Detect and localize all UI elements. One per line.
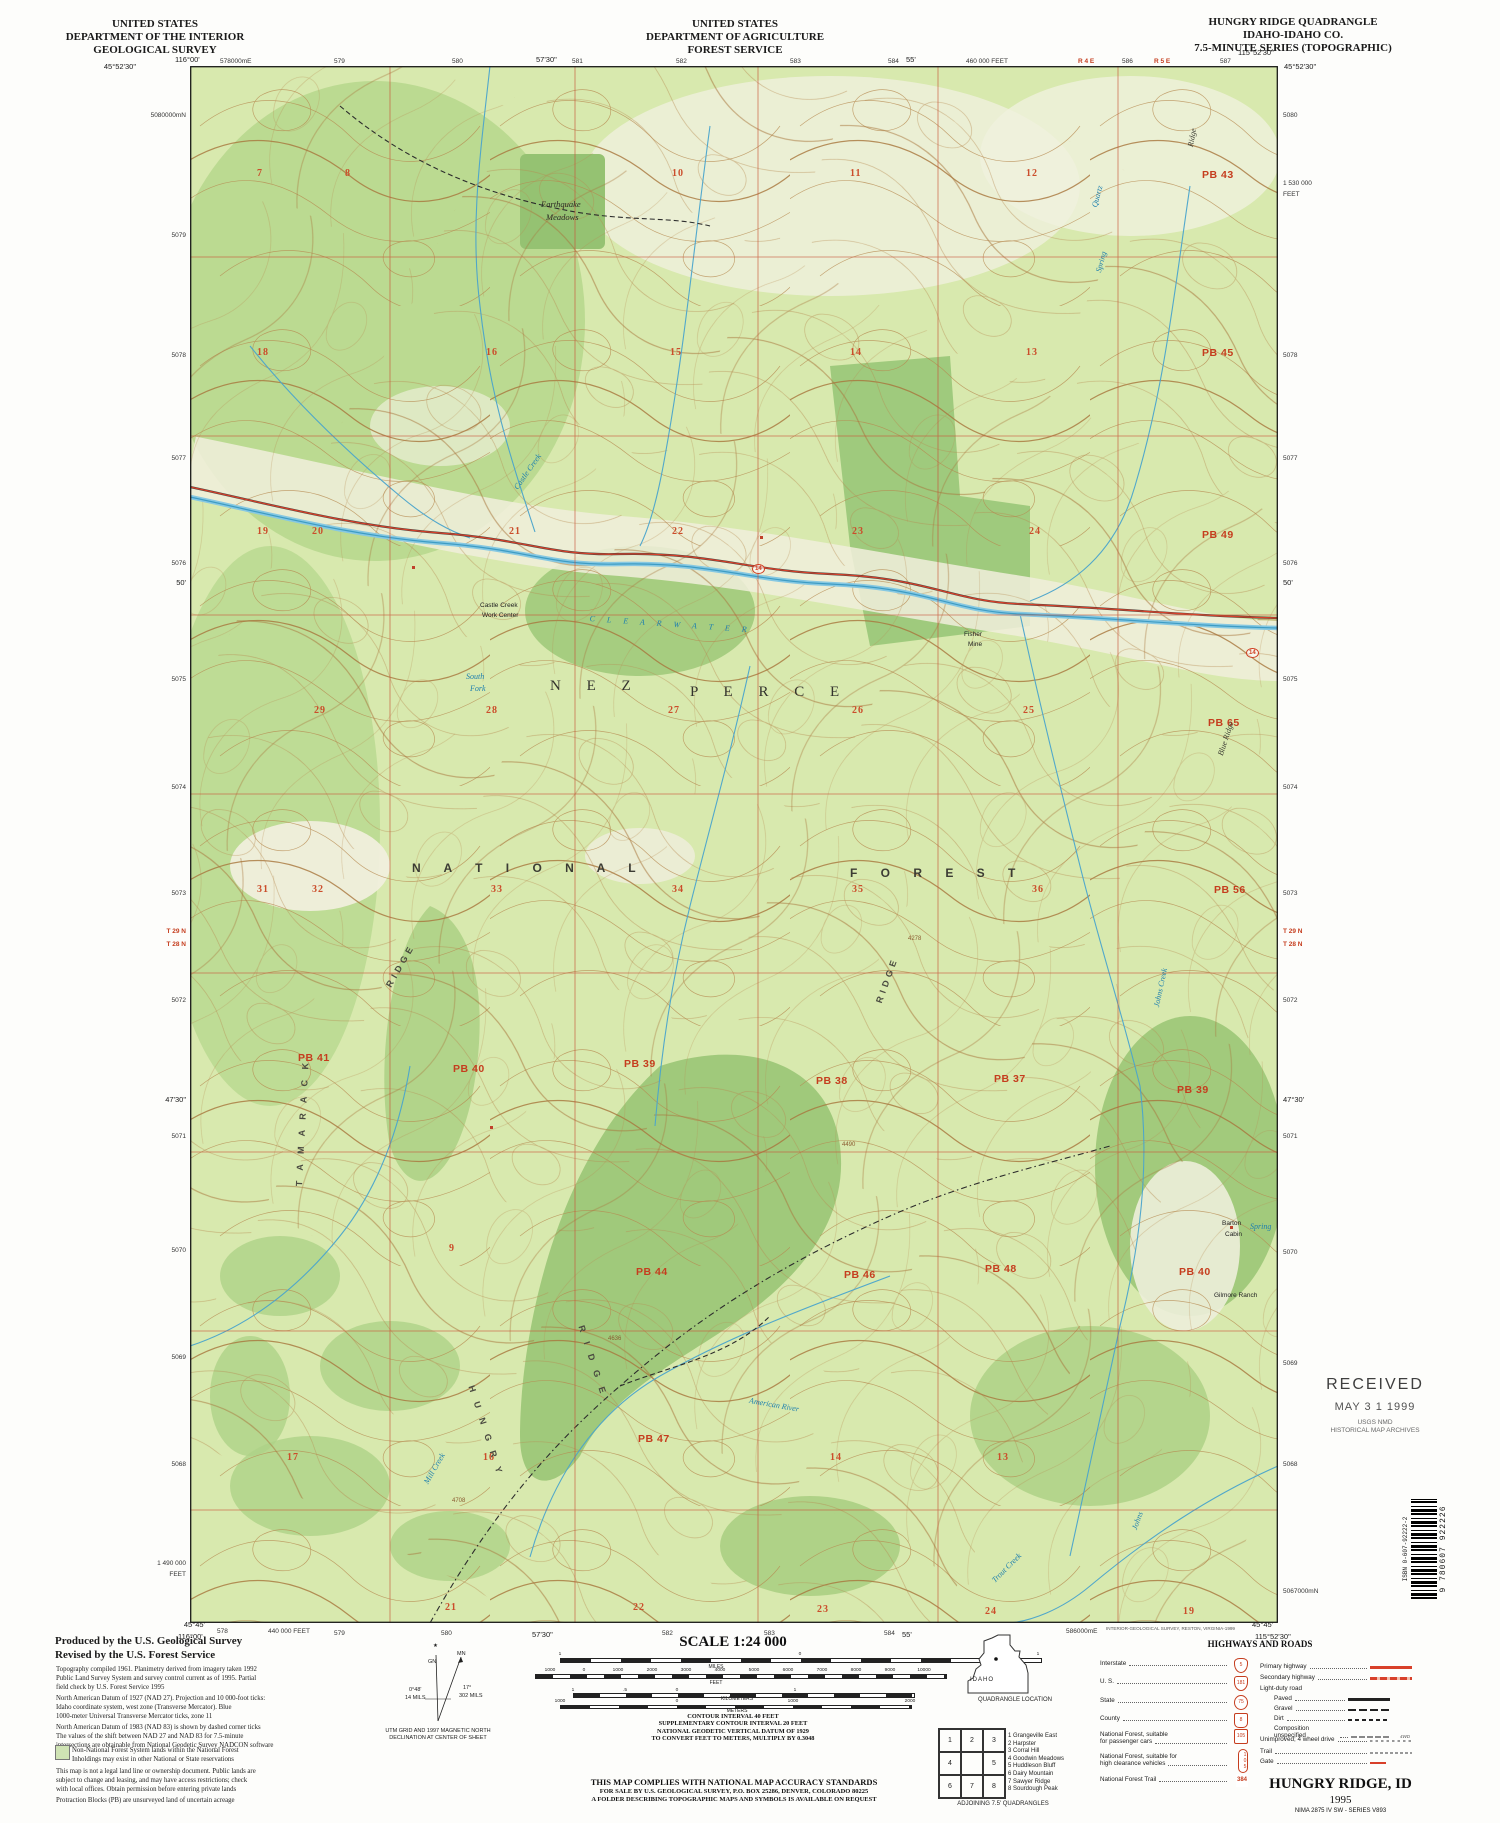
header-line: HUNGRY RIDGE QUADRANGLE: [1128, 16, 1458, 29]
leader-dots: [1275, 1753, 1367, 1754]
sheet-footer: HUNGRY RIDGE, ID 1995 NIMA 2875 IV SW - …: [1238, 1776, 1443, 1814]
margin-label: R 4 E: [1078, 58, 1094, 65]
margin-label: 580: [441, 1630, 452, 1637]
leader-dots: [1159, 1781, 1227, 1782]
legend-item: National Forest Trail 384: [1100, 1776, 1230, 1783]
isbn-barcode: ISBN 0-607-92222-2 9 780607 922226: [1402, 1490, 1458, 1608]
compliance-line: THIS MAP COMPLIES WITH NATIONAL MAP ACCU…: [484, 1778, 984, 1788]
road-style-sample: [1370, 1666, 1412, 1669]
miles-unit: MILES: [708, 1664, 723, 1670]
agency-block-usda: UNITED STATESDEPARTMENT OF AGRICULTUREFO…: [605, 18, 865, 57]
quadrangle-location-caption: QUADRANGLE LOCATION: [940, 1697, 1090, 1703]
legend-label: Primary highway: [1260, 1663, 1307, 1670]
legend-label: Secondary highway: [1260, 1674, 1315, 1681]
map-label: 4278: [908, 936, 921, 942]
scale-tick: 6000: [783, 1668, 794, 1673]
margin-label: 579: [334, 1630, 345, 1637]
survey-credit: INTERIOR-GEOLOGICAL SURVEY, RESTON, VIRG…: [1050, 1626, 1235, 1631]
note-line: 1000-meter Universal Transverse Mercator…: [56, 1713, 212, 1722]
section-number: 31: [257, 884, 269, 895]
leader-dots: [1155, 1743, 1227, 1744]
scale-tick: 1000: [545, 1668, 556, 1673]
road-style-sample: [1370, 1677, 1412, 1680]
map-label: 4490: [842, 1142, 855, 1148]
barcode-rotated-group: ISBN 0-607-92222-2 9 780607 922226: [1402, 1490, 1458, 1608]
road-style-sample: [1348, 1719, 1390, 1721]
margin-label: 583: [790, 58, 801, 65]
section-number: 12: [1026, 168, 1038, 179]
scale-tick: 2000: [905, 1699, 916, 1704]
note-line: Inholdings may exist in other National o…: [72, 1756, 234, 1765]
section-number: 25: [1023, 705, 1035, 716]
quadrangle-location: IDAHO QUADRANGLE LOCATION: [940, 1633, 1090, 1700]
declination-caption: UTM GRID AND 1997 MAGNETIC NORTH DECLINA…: [348, 1728, 528, 1742]
sheet-name: HUNGRY RIDGE, ID: [1238, 1776, 1443, 1793]
road-style-sample: [1348, 1709, 1390, 1711]
gn-mils: 14 MILS: [405, 1695, 425, 1701]
legend-label: Gate: [1260, 1758, 1274, 1765]
protraction-block-label: PB 49: [1202, 529, 1234, 541]
protraction-block-label: PB 47: [638, 1433, 670, 1445]
margin-label: 5074: [1283, 784, 1297, 791]
true-north-star: ★: [433, 1643, 438, 1649]
header-line: 7.5-MINUTE SERIES (TOPOGRAPHIC): [1128, 42, 1458, 55]
margin-label: 586: [1122, 58, 1133, 65]
scale-tick: 0: [799, 1652, 802, 1657]
grid-north-label: GN: [428, 1659, 436, 1665]
margin-label: 5078: [1283, 352, 1297, 359]
header-line: IDAHO-IDAHO CO.: [1128, 29, 1458, 42]
road-style-sample: [1370, 1752, 1412, 1754]
scale-tick: 5000: [749, 1668, 760, 1673]
route-shield-icon: 181: [1234, 1676, 1248, 1691]
inholdings-swatch: [55, 1745, 70, 1760]
section-number: 20: [312, 526, 324, 537]
header-line: UNITED STATES: [30, 18, 280, 31]
section-number: 22: [672, 526, 684, 537]
section-number: 7: [257, 168, 263, 179]
km-unit: KILOMETERS: [721, 1696, 753, 1702]
leader-dots: [1295, 1700, 1345, 1701]
adjoining-cell: 1: [939, 1729, 961, 1752]
margin-label: T 29 N: [1283, 928, 1303, 935]
note-line: Public Land Survey System and survey con…: [56, 1675, 256, 1684]
header-line: FOREST SERVICE: [605, 44, 865, 57]
scale-tick: 1000: [613, 1668, 624, 1673]
adjoining-name: 5 Huddleson Bluff: [1008, 1763, 1055, 1769]
margin-label: 1 490 000: [157, 1560, 186, 1567]
margin-label: 5076: [172, 560, 186, 567]
margin-label: 5078: [172, 352, 186, 359]
margin-label: FEET: [1283, 191, 1300, 198]
section-number: 35: [852, 884, 864, 895]
margin-label: 460 000 FEET: [966, 58, 1008, 65]
header-line: DEPARTMENT OF THE INTERIOR: [30, 31, 280, 44]
stamp-archive: HISTORICAL MAP ARCHIVES: [1320, 1427, 1430, 1434]
margin-label: 1 530 000: [1283, 180, 1312, 187]
adjoining-cell: 4: [939, 1752, 961, 1775]
note-line: Produced by the U.S. Geological Survey: [55, 1637, 242, 1646]
section-number: 23: [852, 526, 864, 537]
route-shield-icon: 75: [1234, 1695, 1248, 1710]
section-number: 23: [817, 1604, 829, 1615]
scale-tick: 1: [572, 1688, 575, 1693]
map-label: South: [466, 672, 484, 681]
margin-label: 5071: [1283, 1133, 1297, 1140]
margin-label: 5070: [172, 1247, 186, 1254]
route-shield-icon: 5: [1234, 1658, 1248, 1673]
section-number: 19: [257, 526, 269, 537]
legend-label: U. S.: [1100, 1678, 1114, 1685]
protraction-block-label: PB 46: [844, 1269, 876, 1281]
compliance-line: FOR SALE BY U.S. GEOLOGICAL SURVEY, P.O.…: [484, 1788, 984, 1796]
note-line: subject to change and leasing, and may h…: [56, 1777, 247, 1786]
scale-tick: 10000: [917, 1668, 930, 1673]
barcode-number: 9 780607 922226: [1439, 1506, 1448, 1593]
note-line: Revised by the U.S. Forest Service: [55, 1651, 215, 1660]
protraction-block-label: PB 56: [1214, 884, 1246, 896]
map-label: Fork: [470, 684, 486, 693]
margin-label: T 28 N: [166, 941, 186, 948]
legend-label: State: [1100, 1697, 1115, 1704]
leader-dots: [1117, 1683, 1227, 1684]
section-number: 15: [670, 347, 682, 358]
contour-line: CONTOUR INTERVAL 40 FEET: [533, 1713, 933, 1720]
margin-label: 5068: [172, 1461, 186, 1468]
margin-label: 50': [1283, 578, 1293, 587]
scale-tick: 1000: [788, 1699, 799, 1704]
margin-label: 5080000mN: [151, 112, 186, 119]
margin-label: 579: [334, 58, 345, 65]
legend-item: National Forest, suitable for high clear…: [1100, 1753, 1230, 1767]
margin-label: 5074: [172, 784, 186, 791]
protraction-block-label: PB 38: [816, 1075, 848, 1087]
protraction-block-label: PB 43: [1202, 169, 1234, 181]
protraction-block-label: PB 45: [1202, 347, 1234, 359]
quadrangle-title-block: HUNGRY RIDGE QUADRANGLEIDAHO-IDAHO CO.7.…: [1128, 16, 1458, 55]
margin-label: 45°52'30": [1284, 62, 1316, 71]
leader-dots: [1287, 1720, 1345, 1721]
legend-label: National Forest, suitable for: [1100, 1753, 1177, 1760]
margin-label: 47'30": [165, 1095, 186, 1104]
legend-label: Trail: [1260, 1748, 1272, 1755]
map-label: 14: [752, 564, 765, 574]
legend-item: County 8: [1100, 1715, 1230, 1722]
adjoining-cell: 3: [983, 1729, 1005, 1752]
leader-dots: [1123, 1720, 1227, 1721]
terrain-graphic: [190, 66, 1278, 1623]
scale-tick: 1: [794, 1688, 797, 1693]
legend-item: Gate: [1260, 1758, 1412, 1765]
section-number: 11: [850, 168, 861, 179]
adjoining-cell: 7: [961, 1775, 983, 1798]
margin-label: 5077: [172, 455, 186, 462]
contour-line: NATIONAL GEODETIC VERTICAL DATUM OF 1929: [533, 1728, 933, 1735]
adjoining-cell: 5: [983, 1752, 1005, 1775]
section-number: 10: [672, 168, 684, 179]
isbn-text: ISBN 0-607-92222-2: [1402, 1517, 1409, 1582]
section-number: 24: [985, 1606, 997, 1617]
scale-tick: 7000: [817, 1668, 828, 1673]
section-number: 14: [850, 347, 862, 358]
section-number: 27: [668, 705, 680, 716]
legend-item: Primary highway: [1260, 1663, 1412, 1670]
legend-item: Interstate 5: [1100, 1660, 1230, 1667]
margin-label: FEET: [169, 1571, 186, 1578]
margin-label: 5072: [1283, 997, 1297, 1004]
margin-label: 50': [176, 578, 186, 587]
sample-tag: 4WD: [1400, 1734, 1410, 1739]
route-shield-icon: 8: [1234, 1713, 1248, 1728]
margin-label: T 28 N: [1283, 941, 1303, 948]
road-style-sample: [1348, 1698, 1390, 1701]
section-number: 9: [449, 1243, 455, 1254]
margin-label: 5075: [1283, 676, 1297, 683]
legend-item: State 75: [1100, 1697, 1230, 1704]
header-line: GEOLOGICAL SURVEY: [30, 44, 280, 57]
section-number: 33: [491, 884, 503, 895]
mn-mils: 302 MILS: [459, 1693, 483, 1699]
legend-label: Light-duty road: [1260, 1685, 1302, 1692]
margin-label: 5067000mN: [1283, 1588, 1318, 1595]
margin-label: 5073: [1283, 890, 1297, 897]
margin-label: 582: [676, 58, 687, 65]
note-line: Topography compiled 1961. Planimetry der…: [56, 1666, 257, 1675]
legend-label: County: [1100, 1715, 1120, 1722]
section-number: 16: [486, 347, 498, 358]
scale-tick: 0: [583, 1668, 586, 1673]
legend-label: National Forest, suitable: [1100, 1731, 1168, 1738]
margin-label: 440 000 FEET: [268, 1628, 310, 1635]
margin-label: 578: [217, 1628, 228, 1635]
margin-label: 5075: [172, 676, 186, 683]
road-style-sample: [1370, 1762, 1386, 1764]
section-number: 26: [852, 705, 864, 716]
margin-label: 5080: [1283, 112, 1297, 119]
legend-label-line2: for passenger cars: [1100, 1738, 1152, 1745]
map-label: Meadows: [546, 212, 579, 222]
mn-angle: 17°: [463, 1685, 471, 1691]
legend-item: National Forest, suitable for passenger …: [1100, 1731, 1230, 1745]
adjoining-name: 2 Harpster: [1008, 1741, 1036, 1747]
margin-label: 5069: [1283, 1360, 1297, 1367]
margin-label: 5079: [172, 232, 186, 239]
protraction-block-label: PB 48: [985, 1263, 1017, 1275]
section-number: 18: [257, 347, 269, 358]
map-label: 4708: [452, 1498, 465, 1504]
map-label: Work Center: [482, 612, 518, 619]
margin-label: 116°00': [175, 55, 200, 64]
margin-label: 580: [452, 58, 463, 65]
declination-caption-line: DECLINATION AT CENTER OF SHEET: [348, 1735, 528, 1742]
sheet-year: 1995: [1238, 1794, 1443, 1806]
stamp-date: MAY 3 1 1999: [1320, 1401, 1430, 1413]
map-label: 14: [1246, 648, 1259, 658]
margin-label: 5072: [172, 997, 186, 1004]
adjoining-name: 1 Grangeville East: [1008, 1733, 1057, 1739]
protraction-block-label: PB 44: [636, 1266, 668, 1278]
map-label: P E R C E: [690, 684, 850, 701]
map-label: N E Z: [550, 678, 642, 695]
note-line: field check by U.S. Forest Service 1995: [56, 1684, 164, 1693]
adjoining-name: 8 Sourdough Peak: [1008, 1786, 1058, 1792]
margin-label: 45°52'30": [104, 62, 136, 71]
section-number: 19: [1183, 1606, 1195, 1617]
legend-label: Unimproved; 4 wheel drive: [1260, 1736, 1335, 1743]
adjoining-name: 4 Goodwin Meadows: [1008, 1756, 1064, 1762]
margin-label: T 29 N: [166, 928, 186, 935]
contour-line: SUPPLEMENTARY CONTOUR INTERVAL 20 FEET: [533, 1720, 933, 1727]
margin-label: 55': [906, 55, 916, 64]
scale-tick: 8000: [851, 1668, 862, 1673]
leader-dots: [1338, 1741, 1367, 1742]
protraction-block-label: PB 39: [1177, 1084, 1209, 1096]
idaho-state-label: IDAHO: [970, 1677, 994, 1683]
compliance-block: THIS MAP COMPLIES WITH NATIONAL MAP ACCU…: [484, 1778, 984, 1804]
legend-item: Gravel: [1260, 1705, 1390, 1712]
stamp-org: USGS NMD: [1320, 1419, 1430, 1426]
stamp-received: RECEIVED: [1320, 1376, 1430, 1394]
map-label: Barton: [1222, 1220, 1241, 1227]
section-number: 8: [345, 168, 351, 179]
protraction-block-label: PB 40: [453, 1063, 485, 1075]
idaho-outline: [940, 1633, 1090, 1695]
legend-label-line2: high clearance vehicles: [1100, 1760, 1165, 1767]
feet-unit: FEET: [710, 1680, 723, 1686]
map-label: Cabin: [1225, 1231, 1242, 1238]
section-number: 13: [997, 1452, 1009, 1463]
declination-caption-line: UTM GRID AND 1997 MAGNETIC NORTH: [348, 1728, 528, 1735]
map-sheet: UNITED STATESDEPARTMENT OF THE INTERIORG…: [0, 0, 1500, 1823]
header-line: DEPARTMENT OF AGRICULTURE: [605, 31, 865, 44]
map-label: F O R E S T: [850, 866, 1025, 880]
legend-label: National Forest Trail: [1100, 1776, 1156, 1783]
margin-label: 45°45': [184, 1620, 205, 1629]
legend-item: Secondary highway: [1260, 1674, 1412, 1681]
section-number: 17: [287, 1452, 299, 1463]
legend-label: Paved: [1274, 1695, 1292, 1702]
agency-block-usgs: UNITED STATESDEPARTMENT OF THE INTERIORG…: [30, 18, 280, 57]
legend-label: Gravel: [1274, 1705, 1293, 1712]
section-number: 24: [1029, 526, 1041, 537]
section-number: 32: [312, 884, 324, 895]
margin-label: 5076: [1283, 560, 1297, 567]
leader-dots: [1310, 1668, 1367, 1669]
scale-tick: .5: [623, 1688, 627, 1693]
map-label: Gilmore Ranch: [1214, 1292, 1257, 1299]
section-number: 29: [314, 705, 326, 716]
section-number: 13: [1026, 347, 1038, 358]
adjoining-name: 7 Sawyer Ridge: [1008, 1779, 1050, 1785]
protraction-block-label: PB 39: [624, 1058, 656, 1070]
note-line: This map is not a legal land line or own…: [56, 1768, 256, 1777]
margin-label: 5073: [172, 890, 186, 897]
margin-label: 578000mE: [220, 58, 251, 65]
margin-label: 5070: [1283, 1249, 1297, 1256]
margin-label: 581: [572, 58, 583, 65]
gn-angle: 0°48': [409, 1687, 421, 1693]
feet-scale-bar: [535, 1674, 947, 1679]
section-number: 28: [486, 705, 498, 716]
margin-label: 584: [888, 58, 899, 65]
leader-dots: [1296, 1710, 1345, 1711]
note-line: North American Datum of 1927 (NAD 27). P…: [56, 1695, 265, 1704]
map-label: Fisher: [964, 631, 982, 638]
adjoining-cell: 2: [961, 1729, 983, 1752]
margin-label: 47°30': [1283, 1095, 1304, 1104]
note-line: The values of the shift between NAD 27 a…: [56, 1733, 243, 1742]
legend-item: Dirt: [1260, 1715, 1390, 1722]
adjoining-cell: [961, 1752, 983, 1775]
adjoining-cell: 8: [983, 1775, 1005, 1798]
sheet-series: NIMA 2875 IV SW - SERIES V893: [1238, 1808, 1443, 1814]
scale-tick: 0: [676, 1688, 679, 1693]
legend-title: HIGHWAYS AND ROADS: [1150, 1639, 1370, 1649]
note-line: Idaho coordinate system, west zone (Tran…: [56, 1704, 231, 1713]
leader-dots: [1118, 1702, 1227, 1703]
topographic-map: 7810111218161514131920212223242928272625…: [190, 66, 1278, 1623]
note-line: Protraction Blocks (PB) are unsurveyed l…: [56, 1797, 235, 1806]
margin-label: 57'30": [536, 55, 557, 64]
adjoining-name: 3 Corral Hill: [1008, 1748, 1039, 1754]
route-shield-icon: 105: [1238, 1749, 1248, 1773]
map-label: N A T I O N A L: [412, 861, 646, 875]
leader-dots: [1277, 1763, 1367, 1764]
section-number: 36: [1032, 884, 1044, 895]
map-label: Earthquake: [541, 199, 581, 209]
section-number: 21: [509, 526, 521, 537]
scale-tick: 9000: [885, 1668, 896, 1673]
note-line: Non-National Forest System lands within …: [72, 1747, 239, 1756]
legend-label: Dirt: [1274, 1715, 1284, 1722]
leader-dots: [1129, 1665, 1227, 1666]
section-number: 21: [445, 1602, 457, 1613]
margin-label: 5071: [172, 1133, 186, 1140]
legend-item: Light-duty road: [1260, 1685, 1412, 1692]
contour-line: TO CONVERT FEET TO METERS, MULTIPLY BY 0…: [533, 1735, 933, 1742]
margin-label: 45°45': [1252, 1620, 1273, 1629]
legend-item: Paved: [1260, 1695, 1390, 1702]
margin-label: 5068: [1283, 1461, 1297, 1468]
section-number: 14: [830, 1452, 842, 1463]
legend-item: U. S. 181: [1100, 1678, 1230, 1685]
adjoining-quadrangle-grid: 12345678: [938, 1728, 1006, 1799]
contour-interval-block: CONTOUR INTERVAL 40 FEETSUPPLEMENTARY CO…: [533, 1713, 933, 1743]
leader-dots: [1168, 1765, 1227, 1766]
margin-label: 5069: [172, 1354, 186, 1361]
margin-label: R 5 E: [1154, 58, 1170, 65]
section-number: 22: [633, 1602, 645, 1613]
leader-dots: [1318, 1679, 1367, 1680]
scale-tick: 1: [559, 1652, 562, 1657]
scale-tick: 2000: [647, 1668, 658, 1673]
map-label: Mine: [968, 641, 982, 648]
map-label: Spring: [1250, 1222, 1271, 1231]
map-label: Castle Creek: [480, 602, 518, 609]
scale-tick: 1000: [555, 1699, 566, 1704]
margin-label: 115°52'30": [1238, 48, 1274, 57]
adjoining-cell: 6: [939, 1775, 961, 1798]
scale-tick: 3000: [681, 1668, 692, 1673]
section-number: 34: [672, 884, 684, 895]
barcode-bars-icon: [1411, 1499, 1437, 1599]
protraction-block-label: PB 37: [994, 1073, 1026, 1085]
legend-item: Unimproved; 4 wheel drive 4WD: [1260, 1736, 1412, 1743]
note-line: North American Datum of 1983 (NAD 83) is…: [56, 1724, 261, 1733]
received-stamp: RECEIVED MAY 3 1 1999 USGS NMD HISTORICA…: [1320, 1376, 1430, 1434]
legend-label: Interstate: [1100, 1660, 1126, 1667]
legend-item: Trail: [1260, 1748, 1412, 1755]
